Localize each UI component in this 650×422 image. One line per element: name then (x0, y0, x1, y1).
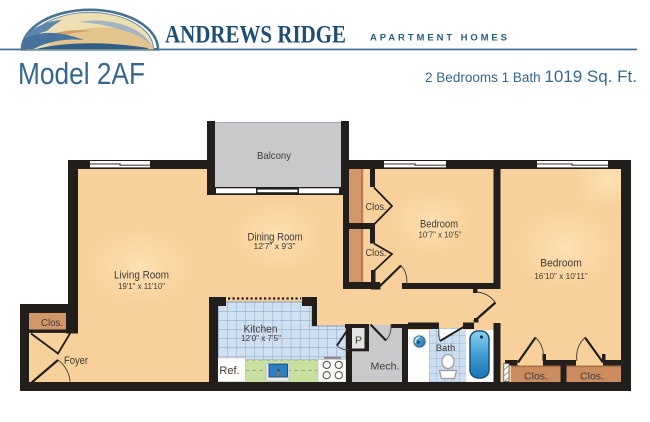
svg-text:Bedroom: Bedroom (540, 258, 582, 270)
svg-text:P: P (355, 335, 362, 347)
svg-text:10'7" x 10'5": 10'7" x 10'5" (419, 229, 462, 239)
svg-text:Living Room: Living Room (114, 270, 169, 282)
svg-text:12'7" x 9'3": 12'7" x 9'3" (254, 241, 296, 251)
svg-text:APARTMENT HOMES: APARTMENT HOMES (370, 33, 510, 44)
svg-text:12'0" x 7'5": 12'0" x 7'5" (241, 333, 281, 343)
svg-text:16'10" x 10'11": 16'10" x 10'11" (534, 271, 588, 281)
svg-text:Ref.: Ref. (219, 365, 239, 377)
svg-text:Clos.: Clos. (366, 248, 387, 259)
svg-text:Balcony: Balcony (257, 150, 292, 162)
svg-text:Clos.: Clos. (580, 372, 604, 383)
svg-text:19'1" x 11'10": 19'1" x 11'10" (118, 281, 165, 291)
svg-text:Clos.: Clos. (366, 202, 387, 213)
svg-text:2 Bedrooms 1 Bath 1019 Sq. Ft.: 2 Bedrooms 1 Bath 1019 Sq. Ft. (425, 67, 637, 86)
svg-text:Clos.: Clos. (524, 372, 548, 383)
svg-text:Bath: Bath (436, 343, 456, 354)
svg-text:ANDREWS RIDGE: ANDREWS RIDGE (165, 22, 346, 49)
svg-text:Model 2AF: Model 2AF (18, 56, 145, 91)
svg-text:Foyer: Foyer (64, 355, 88, 367)
svg-text:Clos.: Clos. (41, 318, 63, 329)
svg-text:Mech.: Mech. (371, 361, 400, 373)
